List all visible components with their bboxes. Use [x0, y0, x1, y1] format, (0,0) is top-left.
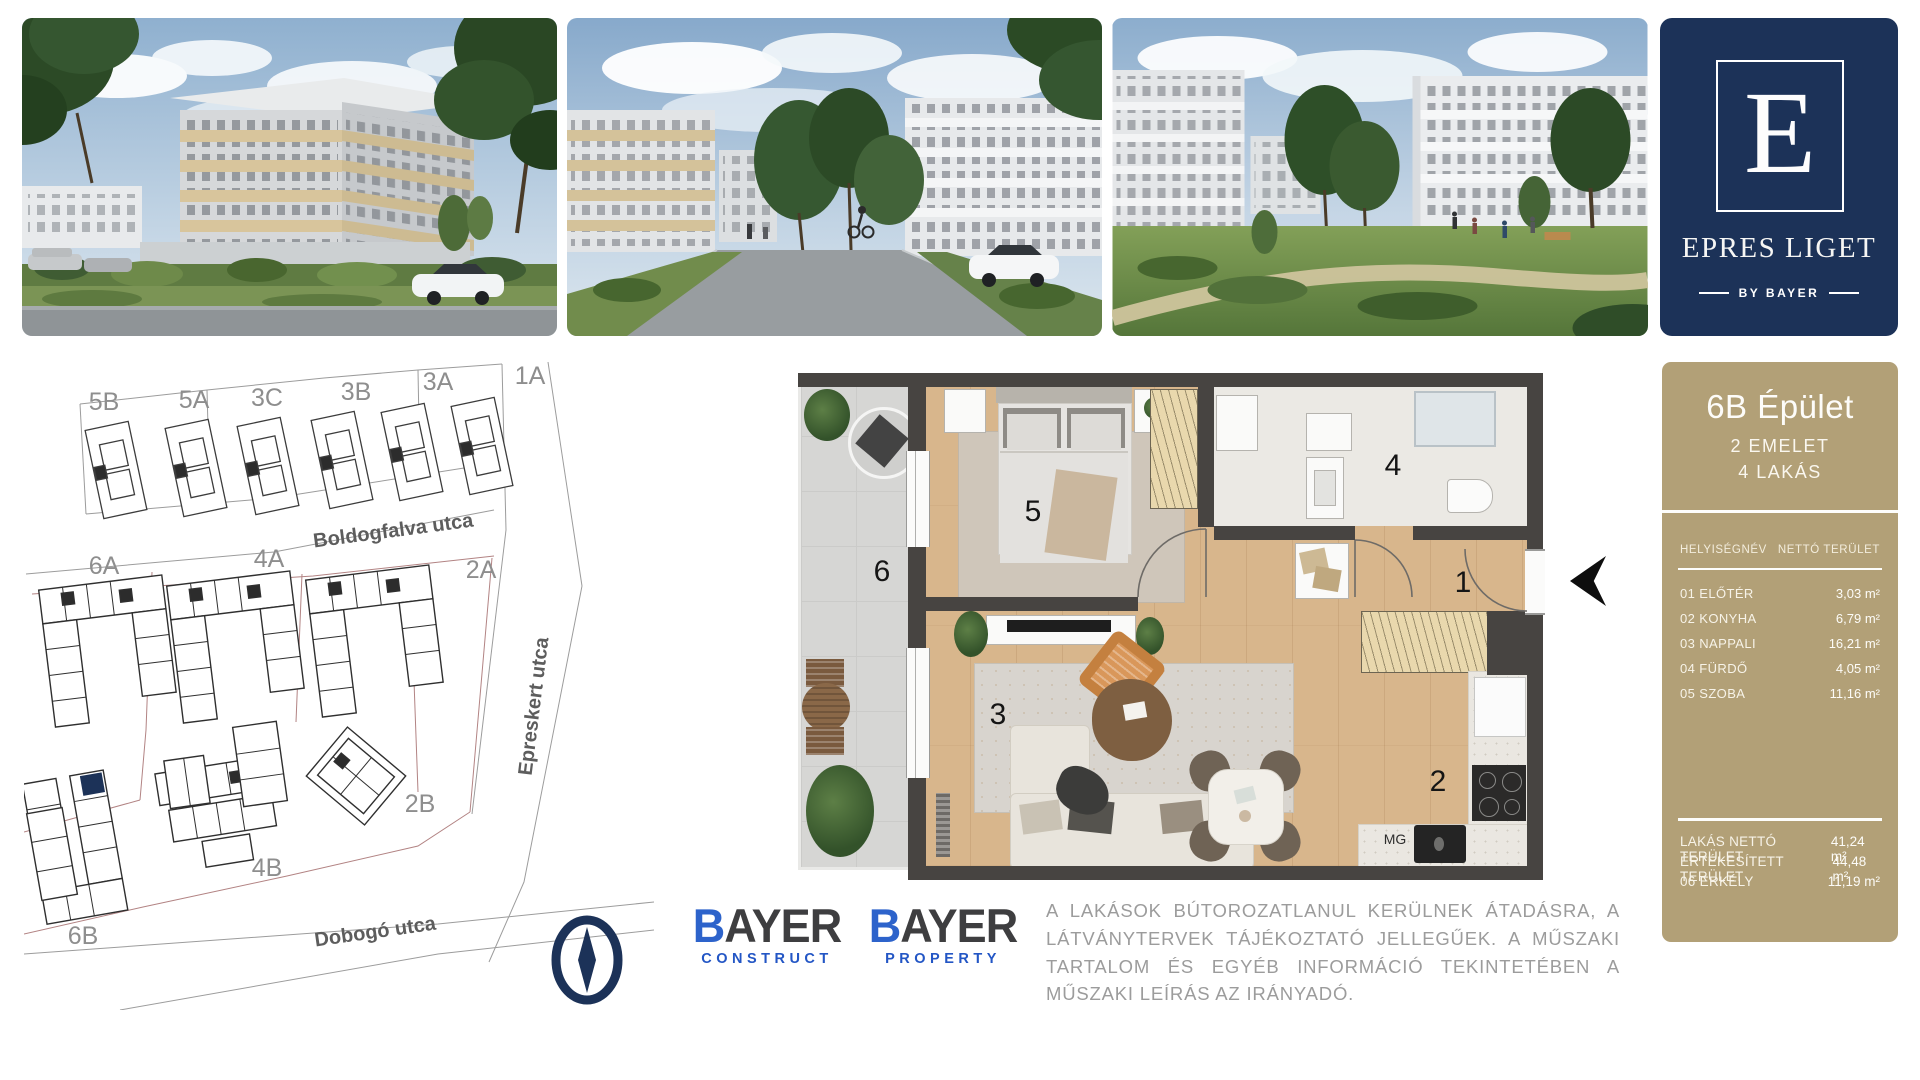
site-plan: 5B 5A 3C 3B 3A 1A 6A 4A 2A 2B 4B 6B Bold…: [24, 362, 654, 1010]
label-5a: 5A: [179, 386, 210, 414]
label-2b: 2B: [405, 790, 436, 818]
label-3b: 3B: [341, 378, 372, 406]
unit-info-panel: 6B Épület 2 EMELET 4 LAKÁS HELYISÉGNÉV N…: [1662, 362, 1898, 942]
area-table-header: HELYISÉGNÉV NETTÓ TERÜLET: [1680, 544, 1880, 556]
render-photo-street-view: [567, 18, 1102, 336]
floor-subtitle: 2 EMELET: [1662, 436, 1898, 457]
area-table-row: 02 KONYHA 6,79 m²: [1680, 611, 1880, 626]
area-table-row: 04 FÜRDŐ 4,05 m²: [1680, 661, 1880, 676]
room-number-3: 3: [978, 698, 1018, 732]
label-5b: 5B: [89, 388, 120, 416]
area-table-row: 01 ELŐTÉR 3,03 m²: [1680, 586, 1880, 601]
brand-name: EPRES LIGET: [1660, 232, 1898, 265]
room-number-4: 4: [1373, 449, 1413, 483]
door-arcs: [798, 373, 1543, 880]
site-buildings-bottom-row: [24, 721, 406, 924]
bayer-division-label: CONSTRUCT: [686, 951, 848, 967]
byline-dash-left: [1699, 292, 1729, 294]
byline-text: BY BAYER: [1739, 286, 1820, 300]
render-photo-street-corner: [22, 18, 557, 336]
bayer-property-logo: BAYER PROPERTY: [858, 903, 1028, 967]
brand-logo-letter: E: [1744, 74, 1816, 192]
entrance-arrow-icon: [1570, 556, 1606, 606]
label-6b: 6B: [68, 922, 99, 950]
table-header-divider: [1678, 568, 1882, 570]
street-dobogo: Dobogó utca: [313, 913, 438, 952]
label-1a: 1A: [515, 362, 546, 390]
building-title: 6B Épület: [1662, 388, 1898, 426]
street-boldogfalva: Boldogfalva utca: [312, 510, 475, 553]
brochure-page: E EPRES LIGET BY BAYER: [0, 0, 1920, 1080]
compass-icon: [556, 920, 618, 1000]
bayer-division-label: PROPERTY: [858, 951, 1028, 967]
units-subtitle: 4 LAKÁS: [1662, 462, 1898, 483]
label-3c: 3C: [251, 384, 283, 412]
panel-divider: [1662, 510, 1898, 513]
street-epreskert: Epreskert utca: [515, 635, 554, 776]
summary-divider: [1678, 818, 1882, 821]
header-room-name: HELYISÉGNÉV: [1680, 544, 1767, 556]
highlighted-unit: [80, 772, 105, 796]
disclaimer-text: A LAKÁSOK BÚTOROZATLANUL KERÜLNEK ÁTADÁS…: [1046, 897, 1620, 1008]
washing-machine-label: MG: [1375, 831, 1415, 847]
label-4b: 4B: [252, 854, 283, 882]
brand-byline: BY BAYER: [1660, 286, 1898, 300]
label-6a: 6A: [89, 552, 120, 580]
summary-row: 06 ERKÉLY 11,19 m²: [1680, 874, 1880, 889]
render-photo-courtyard: [1112, 18, 1648, 336]
brand-logo-tile: E EPRES LIGET BY BAYER: [1660, 18, 1898, 336]
room-number-5: 5: [1013, 495, 1053, 529]
bayer-construct-logo: BAYER CONSTRUCT: [686, 903, 848, 967]
apartment-floor-plan: 6 5 4 1 3 2 MG: [798, 373, 1543, 880]
area-table-row: 05 SZOBA 11,16 m²: [1680, 686, 1880, 701]
label-3a: 3A: [423, 368, 454, 396]
header-net-area: NETTÓ TERÜLET: [1778, 544, 1880, 556]
label-2a: 2A: [466, 556, 497, 584]
bayer-wordmark: BAYER: [858, 902, 1028, 949]
room-number-6: 6: [862, 555, 902, 589]
room-number-2: 2: [1418, 765, 1458, 799]
room-number-1: 1: [1443, 566, 1483, 600]
brand-logo-frame: E: [1716, 60, 1844, 212]
area-table-row: 03 NAPPALI 16,21 m²: [1680, 636, 1880, 651]
site-buildings-top-row: [85, 397, 513, 518]
byline-dash-right: [1829, 292, 1859, 294]
bayer-wordmark: BAYER: [686, 902, 848, 949]
site-buildings-u-row: [39, 565, 446, 727]
label-4a: 4A: [254, 545, 285, 573]
